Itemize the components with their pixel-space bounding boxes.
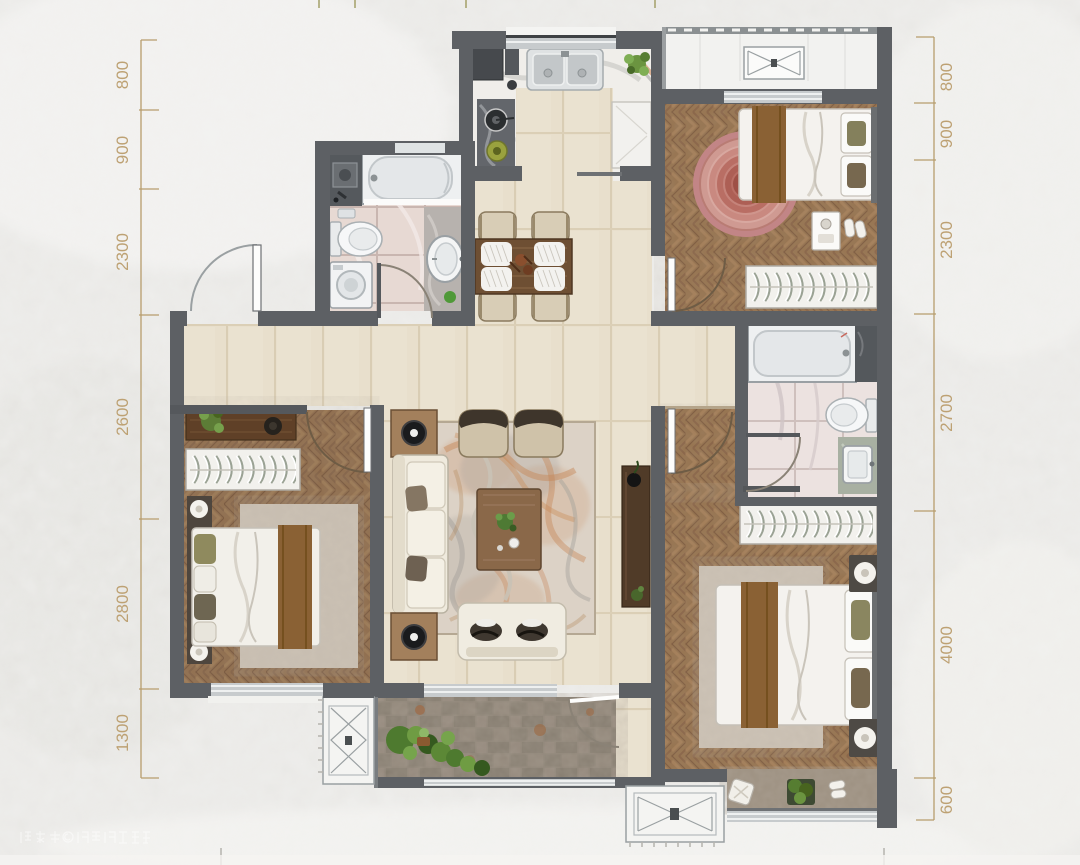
svg-text:800: 800: [113, 61, 132, 89]
svg-text:900: 900: [113, 136, 132, 164]
svg-text:900: 900: [937, 120, 956, 148]
svg-text:2300: 2300: [113, 233, 132, 271]
svg-text:600: 600: [937, 786, 956, 814]
svg-text:2700: 2700: [937, 394, 956, 432]
svg-text:2600: 2600: [113, 398, 132, 436]
svg-text:800: 800: [937, 63, 956, 91]
svg-text:4000: 4000: [937, 626, 956, 664]
svg-text:2300: 2300: [937, 221, 956, 259]
svg-text:1300: 1300: [113, 714, 132, 752]
svg-text:2800: 2800: [113, 585, 132, 623]
